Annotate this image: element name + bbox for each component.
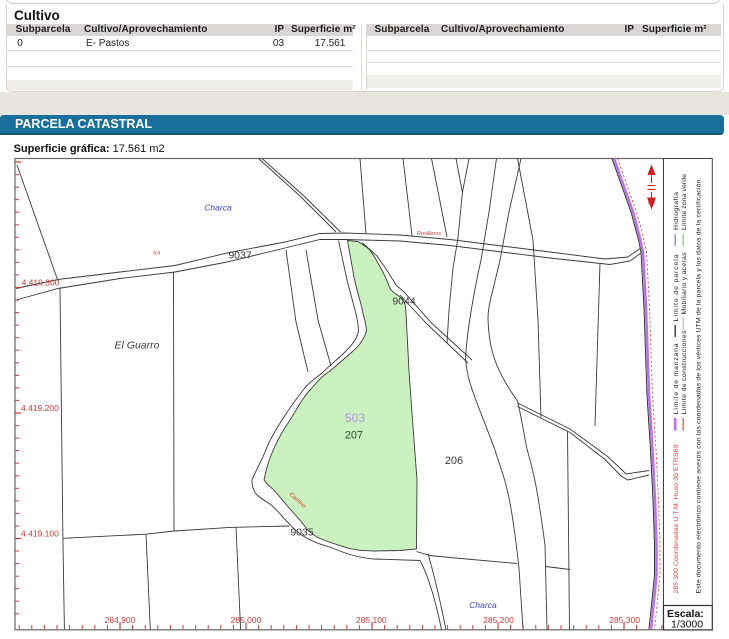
svg-text:Rosilleros: Rosilleros <box>417 231 441 237</box>
svg-text:9035: 9035 <box>290 527 314 539</box>
svg-text:Charca: Charca <box>204 203 232 213</box>
svg-text:9037: 9037 <box>228 250 252 262</box>
svg-text:285.100: 285.100 <box>356 615 387 625</box>
svg-text:285.300 Coordenadas U.T.M. Hus: 285.300 Coordenadas U.T.M. Huso 30 ETRS8… <box>673 444 680 593</box>
svg-text:Límite de construcciones: Límite de construcciones <box>681 330 688 415</box>
svg-text:206: 206 <box>445 455 463 467</box>
svg-text:9044: 9044 <box>392 296 416 308</box>
svg-text:4.419.100: 4.419.100 <box>21 529 59 539</box>
svg-text:285.000: 285.000 <box>231 615 262 625</box>
svg-text:Límite de manzana: Límite de manzana <box>673 343 680 414</box>
svg-text:Charca: Charca <box>469 600 497 610</box>
svg-text:Mobiliario y aceras: Mobiliario y aceras <box>681 252 688 315</box>
svg-text:503: 503 <box>345 411 365 425</box>
svg-text:Hidrografía: Hidrografía <box>673 192 680 230</box>
svg-text:Ica: Ica <box>154 251 161 257</box>
svg-text:285.200: 285.200 <box>483 615 514 625</box>
svg-text:207: 207 <box>345 430 363 442</box>
svg-text:4.419.200: 4.419.200 <box>21 403 59 413</box>
svg-text:Este documento electrónico con: Este documento electrónico contiene anex… <box>696 177 703 593</box>
svg-text:Límite zona verde: Límite zona verde <box>681 174 688 230</box>
svg-text:1/3000: 1/3000 <box>671 619 703 631</box>
svg-text:4.419.300: 4.419.300 <box>22 278 60 288</box>
svg-text:284.900: 284.900 <box>105 615 136 625</box>
svg-text:Límite de parcela: Límite de parcela <box>673 254 680 321</box>
svg-text:285.300: 285.300 <box>609 615 640 625</box>
svg-text:El Guarro: El Guarro <box>115 340 160 352</box>
